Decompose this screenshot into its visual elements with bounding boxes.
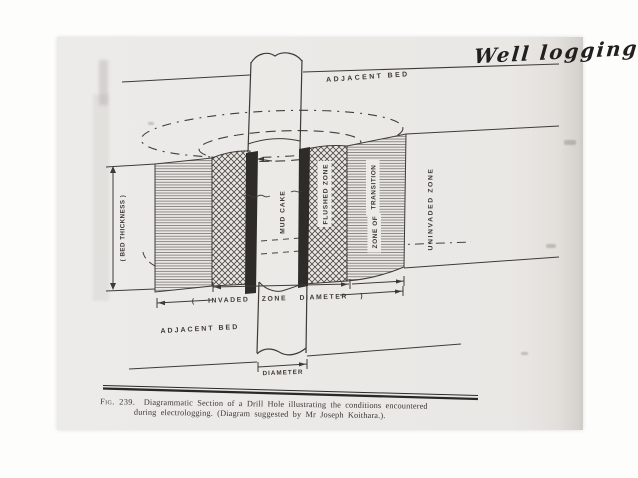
left-flushed-zone	[212, 151, 250, 286]
mud-cake-arrowhead	[257, 157, 264, 161]
diameter-label: DIAMETER	[262, 369, 303, 377]
dim-arrow-left	[158, 301, 165, 305]
uninvaded-zone-label: UNINVADED ZONE	[428, 167, 435, 250]
upper-bed-line-left	[122, 75, 250, 82]
bed-thickness-arrow-down	[110, 283, 116, 290]
scanned-page-screenshot: MUD CAKE FLUSHED ZONE TRANSITION ZONE OF…	[0, 0, 638, 478]
borehole-top-break	[251, 53, 302, 63]
lower-bed-line-left	[129, 362, 257, 369]
mud-cake-left-strip	[245, 151, 258, 294]
bed-thickness-label: ( BED THICKNESS )	[120, 195, 127, 262]
invaded-zone-diameter-label: ( INVADED ZONE DIAMETER )	[192, 293, 365, 305]
left-transition-zone	[155, 158, 212, 292]
bed-bottom-right-line	[404, 257, 559, 268]
bed-top-left-tick	[106, 164, 155, 167]
dim-arrow-right	[299, 362, 306, 366]
borehole-upper-right-wall	[300, 60, 302, 150]
hole-dashed-line-2	[261, 251, 300, 254]
adjacent-bed-top-label: ADJACENT BED	[326, 71, 410, 84]
hole-dashed-line-1	[261, 238, 300, 241]
mud-cake-right-strip	[298, 147, 310, 288]
borehole-lower-left-wall	[257, 282, 259, 353]
bed-top-right-line	[406, 126, 559, 134]
dim-arrow-right	[395, 290, 402, 294]
zone-of-label: ZONE OF	[372, 216, 379, 249]
transition-label: TRANSITION	[371, 164, 378, 209]
figure-number: Fig. 239.	[100, 397, 135, 406]
caption-rule	[103, 386, 478, 400]
flushed-zone-label: FLUSHED ZONE	[323, 164, 330, 225]
borehole-mouth-arc	[248, 139, 300, 144]
bed-thickness-dimension	[110, 166, 116, 290]
bed-bottom-left-tick	[106, 289, 155, 291]
dim-arrow-right	[341, 282, 348, 286]
dim-arrow-right	[396, 279, 403, 283]
borehole-lower-right-wall	[306, 280, 307, 353]
mud-cake-strips	[245, 147, 310, 294]
lower-bed-line-right	[307, 344, 461, 356]
adjacent-bed-bottom-label: ADJACENT BED	[160, 324, 239, 335]
borehole-bottom-break	[257, 348, 306, 355]
mud-cake-label: MUD CAKE	[280, 190, 287, 234]
